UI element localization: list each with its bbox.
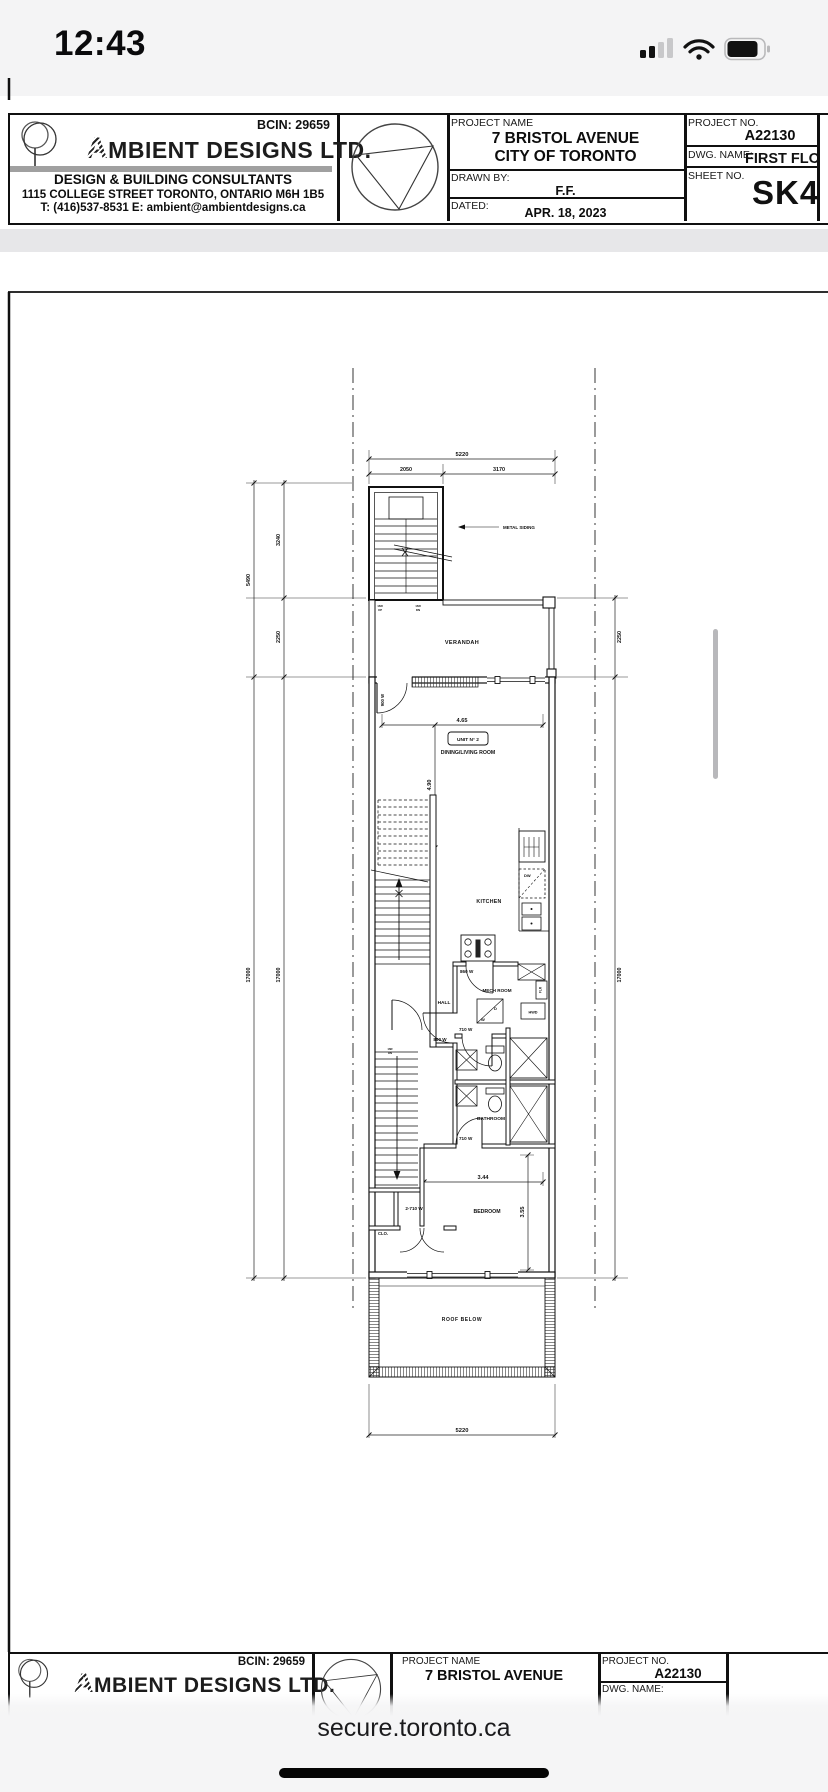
stair-tag-dn: 16R DN <box>415 604 421 612</box>
project-name: 7 BRISTOL AVENUE <box>390 1668 598 1684</box>
dim-bedroom-width: 3.44 <box>478 1175 490 1181</box>
bcin-number: BCIN: 29659 <box>160 1656 305 1668</box>
dishwasher-icon <box>519 869 545 898</box>
project-no: A22130 <box>630 1666 726 1681</box>
svg-text:DN: DN <box>388 1051 392 1055</box>
dim-lot-depth-b: 17000 <box>276 968 282 983</box>
room-label-living: DINING/LIVING ROOM <box>441 750 495 756</box>
stair-dn-tag: 16R DN <box>387 1047 392 1055</box>
kitchen-sink-icon <box>519 831 545 862</box>
shaft-icon <box>510 1086 547 1142</box>
dim-top-left: 2050 <box>400 467 412 473</box>
room-label-mech: MECH ROOM <box>482 988 511 993</box>
front-window <box>487 675 545 685</box>
dim-left-upper: 3240 <box>276 534 282 546</box>
dimension-extensions <box>246 450 628 1438</box>
dim-living-width: 4.65 <box>457 718 468 724</box>
dim-lot-depth-a: 17000 <box>246 968 252 983</box>
interior-stairs <box>371 800 430 1185</box>
dim-right-verandah: 2250 <box>617 631 623 643</box>
url-text[interactable]: secure.toronto.ca <box>0 1714 828 1743</box>
toilet-icon <box>486 1046 504 1071</box>
verandah <box>369 597 556 678</box>
rule <box>598 1681 726 1683</box>
kitchen-fixtures <box>461 828 549 961</box>
exterior-stair-enclosure <box>369 487 452 600</box>
shaft-icon <box>510 1038 547 1078</box>
closet-doors <box>400 1228 444 1252</box>
room-label-kitchen: KITCHEN <box>476 899 501 905</box>
room-label-closet: CLO. <box>378 1231 388 1236</box>
dishwasher-label: DW <box>524 873 531 878</box>
dryer-label: D <box>494 1006 497 1011</box>
floor-plan-sheet[interactable]: 5220 2050 3170 5490 3240 2250 17000 1700… <box>0 0 828 1792</box>
door-tag-900w: 900 W <box>380 693 385 706</box>
sheet-border <box>8 78 828 1652</box>
door-tag-710w-bath: 710 W <box>459 1136 473 1141</box>
front-entry-door: 900 W <box>377 675 412 713</box>
hwd-label: HWD <box>528 1011 537 1015</box>
door-tag-860w-hall: 860 W <box>433 1037 447 1042</box>
bathrooms <box>456 1036 547 1144</box>
metal-siding-label: METAL SIDING <box>503 525 535 530</box>
dim-top-overall: 5220 <box>456 452 469 458</box>
project-name-label: PROJECT NAME <box>402 1656 480 1667</box>
room-label-hall: HALL <box>438 1000 451 1006</box>
svg-text:DN: DN <box>416 608 420 612</box>
toilet-icon <box>486 1088 504 1112</box>
metal-siding-note: METAL SIDING <box>458 525 535 531</box>
dim-lot-depth-c: 17000 <box>617 968 623 983</box>
stair-tag-up: 16R UP <box>377 604 383 612</box>
unit-label: UNIT N° 2 <box>457 737 479 743</box>
front-window-hatch <box>412 677 478 687</box>
home-indicator[interactable] <box>279 1768 549 1778</box>
dim-top-right: 3170 <box>493 467 505 473</box>
vanity-sink-icon <box>456 1086 477 1106</box>
room-label-bathroom: BATHROOM <box>477 1116 505 1122</box>
room-label-roof: ROOF BELOW <box>442 1317 482 1323</box>
door-tag-710w-powder: 710 W <box>459 1027 473 1032</box>
dim-left-verandah: 2250 <box>276 631 282 643</box>
door-tag-2-710w: 2-710 W <box>405 1206 423 1211</box>
room-label-verandah: VERANDAH <box>445 640 479 646</box>
flr-label: FLR <box>539 986 543 993</box>
screen: 12:43 BCIN: 29659 <box>0 0 828 1792</box>
dim-left-total: 5490 <box>246 574 252 586</box>
door-tag-860w-kitchen: 860 W <box>460 969 474 974</box>
room-label-bedroom: BEDROOM <box>473 1209 500 1215</box>
dim-bottom-overall: 5220 <box>456 1428 469 1434</box>
dim-bedroom-depth: 3.55 <box>520 1207 526 1218</box>
roof-below <box>369 1278 555 1377</box>
stove-icon <box>461 935 495 961</box>
dim-living-depth: 4.90 <box>427 780 433 791</box>
svg-text:UP: UP <box>378 608 382 612</box>
washer-label: W <box>481 1017 485 1022</box>
scroll-indicator[interactable] <box>713 629 718 779</box>
